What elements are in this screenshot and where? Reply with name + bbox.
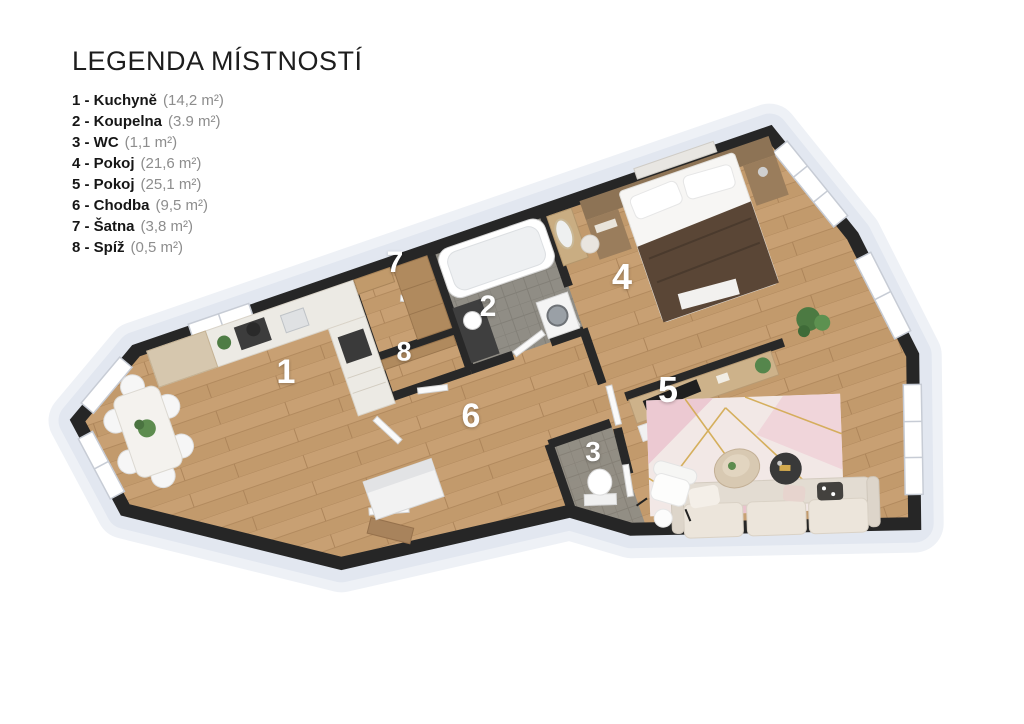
room-number-label: 5 xyxy=(658,372,678,408)
room-number-label: 7 xyxy=(387,248,404,278)
legend-item-area: (9,5 m²) xyxy=(156,197,209,214)
legend-item: 8 - Spíž(0,5 m²) xyxy=(72,239,363,260)
patterned-pillow xyxy=(817,482,844,501)
room-number-label: 4 xyxy=(612,259,632,295)
legend-item-label: 4 - Pokoj xyxy=(72,155,135,172)
legend-item-label: 2 - Koupelna xyxy=(72,113,162,130)
room-number-label: 1 xyxy=(277,355,296,389)
legend-item-label: 5 - Pokoj xyxy=(72,176,135,193)
legend-item-label: 8 - Spíž xyxy=(72,239,125,256)
legend-item: 4 - Pokoj(21,6 m²) xyxy=(72,155,363,176)
room-number-label: 2 xyxy=(480,292,497,322)
legend-item-area: (3,8 m²) xyxy=(141,218,194,235)
legend-item-label: 1 - Kuchyně xyxy=(72,92,157,109)
legend-item-label: 6 - Chodba xyxy=(72,197,150,214)
room-number-label: 8 xyxy=(396,339,411,366)
legend-item-label: 7 - Šatna xyxy=(72,218,135,235)
legend-list: 1 - Kuchyně(14,2 m²) 2 - Koupelna(3.9 m²… xyxy=(72,92,363,260)
living-window-lower xyxy=(903,384,923,494)
legend-title: LEGENDA MÍSTNOSTÍ xyxy=(72,46,363,77)
legend-item: 6 - Chodba(9,5 m²) xyxy=(72,197,363,218)
legend-item: 5 - Pokoj(25,1 m²) xyxy=(72,176,363,197)
room-number-label: 6 xyxy=(462,399,481,433)
legend-item-area: (21,6 m²) xyxy=(141,155,202,172)
legend-item: 2 - Koupelna(3.9 m²) xyxy=(72,113,363,134)
sofa xyxy=(671,476,881,538)
floorplan-stage: LEGENDA MÍSTNOSTÍ 1 - Kuchyně(14,2 m²) 2… xyxy=(0,0,1024,724)
blush-pillow xyxy=(783,485,806,502)
legend-item-area: (14,2 m²) xyxy=(163,92,224,109)
legend-item: 3 - WC(1,1 m²) xyxy=(72,134,363,155)
legend-item: 7 - Šatna(3,8 m²) xyxy=(72,218,363,239)
room-legend: LEGENDA MÍSTNOSTÍ 1 - Kuchyně(14,2 m²) 2… xyxy=(72,46,363,260)
legend-item-area: (0,5 m²) xyxy=(131,239,184,256)
legend-item-area: (3.9 m²) xyxy=(168,113,221,130)
legend-item-label: 3 - WC xyxy=(72,134,119,151)
legend-item-area: (1,1 m²) xyxy=(125,134,178,151)
room-number-label: 3 xyxy=(585,438,601,466)
legend-item: 1 - Kuchyně(14,2 m²) xyxy=(72,92,363,113)
legend-item-area: (25,1 m²) xyxy=(141,176,202,193)
